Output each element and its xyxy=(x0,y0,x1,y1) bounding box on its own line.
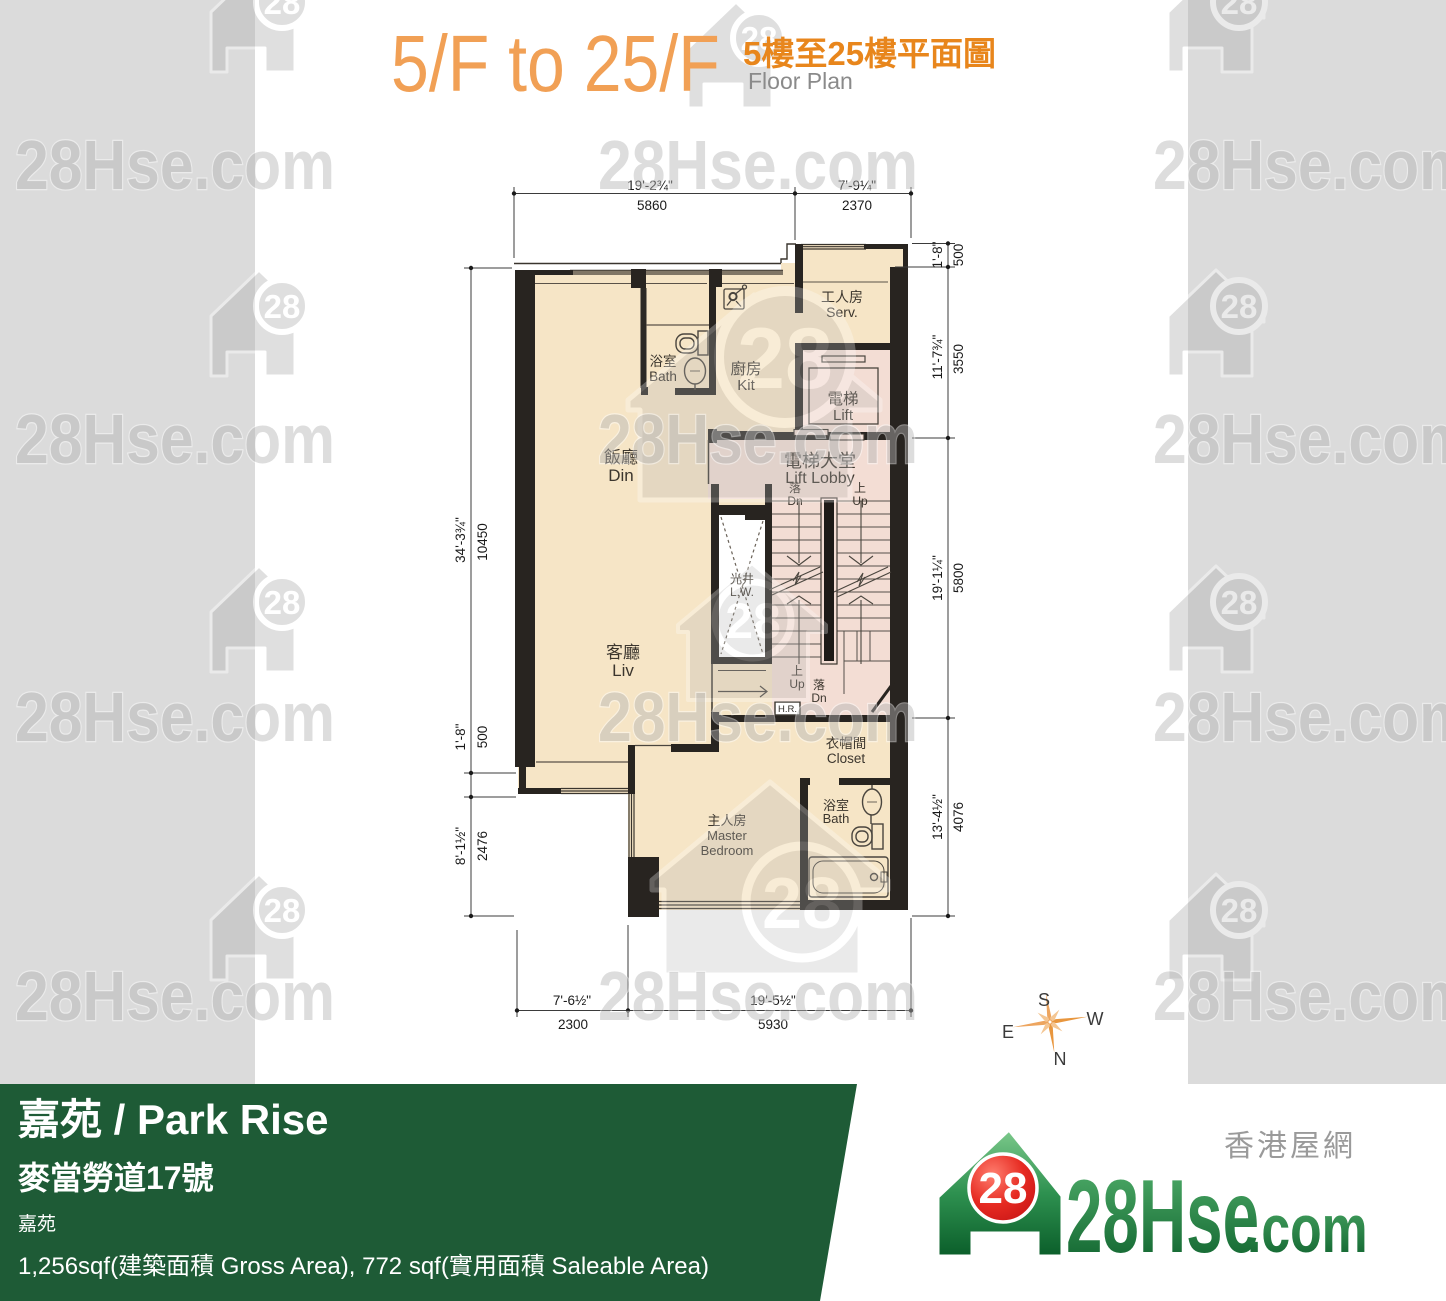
svg-text:28: 28 xyxy=(737,311,833,407)
svg-text:28Hse.com: 28Hse.com xyxy=(1153,957,1446,1035)
svg-text:28Hse.com: 28Hse.com xyxy=(598,400,918,478)
svg-text:28Hse.com: 28Hse.com xyxy=(15,400,335,478)
svg-text:.com: .com xyxy=(1247,1190,1368,1267)
svg-text:28: 28 xyxy=(762,864,842,944)
svg-text:28Hse.com: 28Hse.com xyxy=(15,957,335,1035)
svg-text:28Hse.com: 28Hse.com xyxy=(598,678,918,756)
svg-text:28: 28 xyxy=(979,1164,1028,1213)
svg-text:28Hse.com: 28Hse.com xyxy=(598,957,918,1035)
svg-text:28Hse.com: 28Hse.com xyxy=(1153,400,1446,478)
svg-text:28Hse.com: 28Hse.com xyxy=(15,678,335,756)
svg-text:香港屋網: 香港屋網 xyxy=(1224,1130,1356,1163)
svg-text:5樓至25樓平面圖: 5樓至25樓平面圖 xyxy=(743,35,996,72)
svg-text:28: 28 xyxy=(725,593,781,649)
svg-text:嘉苑: 嘉苑 xyxy=(18,1213,56,1235)
svg-text:麥當勞道17號: 麥當勞道17號 xyxy=(18,1160,214,1196)
svg-text:28Hse: 28Hse xyxy=(1066,1159,1259,1275)
svg-text:嘉苑 / Park Rise: 嘉苑 / Park Rise xyxy=(18,1096,328,1143)
svg-text:5/F to 25/F: 5/F to 25/F xyxy=(391,19,720,108)
svg-text:Floor Plan: Floor Plan xyxy=(748,68,853,94)
svg-text:1,256sqf(建築面積 Gross Area), 772: 1,256sqf(建築面積 Gross Area), 772 sqf(實用面積 … xyxy=(18,1253,709,1280)
svg-text:28Hse.com: 28Hse.com xyxy=(1153,678,1446,756)
